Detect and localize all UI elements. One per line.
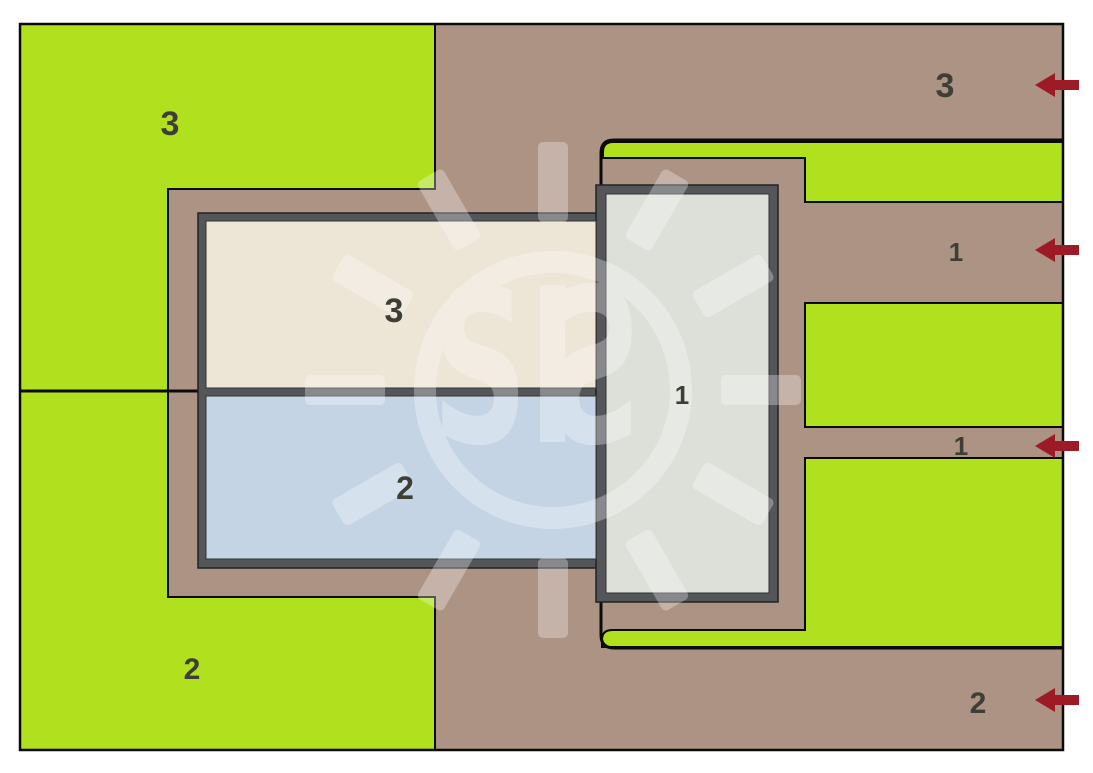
label-top-left-area: 3 [161,105,180,143]
green-strip-middle-right [805,303,1063,427]
site-plan-page: SI S 3 3 2 1 2 3 1 1 2 [0,0,1093,773]
site-plan-drawing: SI S 3 3 2 1 2 3 1 1 2 [0,0,1093,773]
label-top-right-area: 3 [936,67,955,105]
watermark-mirrored-letter: S [545,244,641,494]
label-bottom-left-area: 2 [184,653,201,686]
label-room-top: 3 [385,292,404,330]
sun-ray [721,375,801,405]
label-upper-corridor: 1 [949,237,963,267]
label-room-bottom: 2 [396,470,414,506]
sun-ray [538,558,568,638]
sun-ray [305,375,385,405]
sun-ray [538,142,568,222]
label-hall-right: 1 [675,380,689,410]
label-lower-corridor: 1 [954,431,968,461]
label-bottom-right-area: 2 [970,687,987,720]
